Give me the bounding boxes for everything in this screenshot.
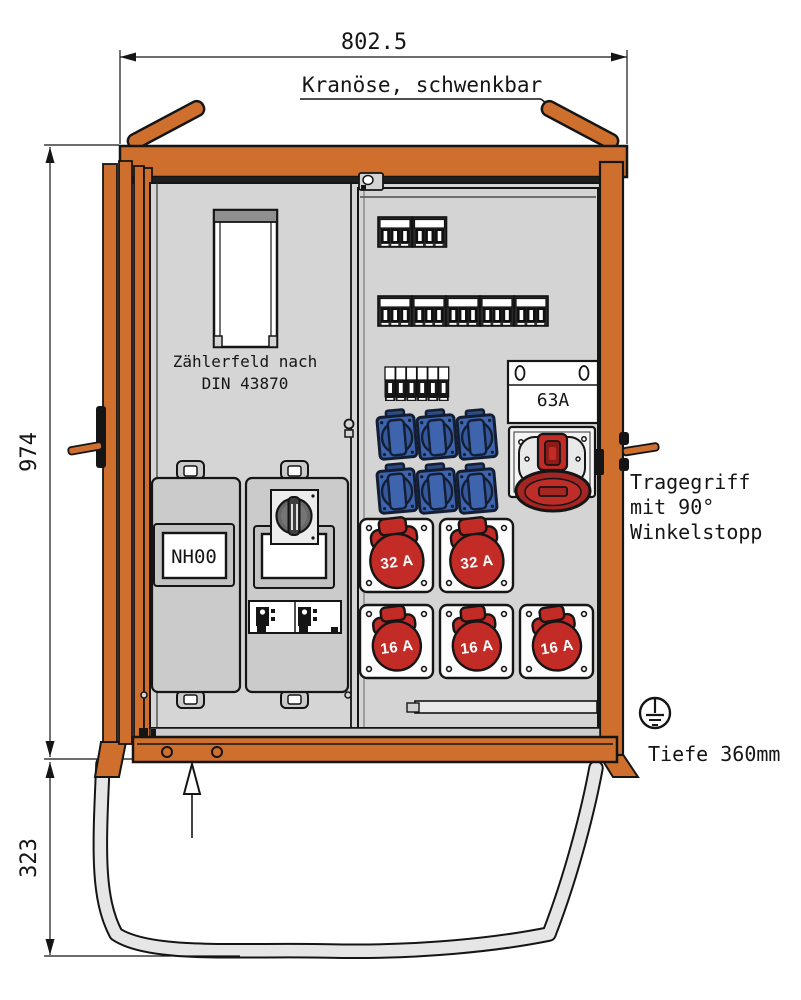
technical-drawing-page: 802.5 974 323 Kranöse, schwenkbar [0, 0, 801, 1000]
rotary-main-switch [271, 490, 318, 544]
carrying-handle-icon [622, 443, 659, 456]
breaker-row-2 [378, 296, 548, 326]
earth-symbol-icon [640, 698, 670, 728]
arrowhead-up-icon [46, 762, 55, 778]
left-door-open [103, 161, 152, 744]
cee16-sockets: 16 A 16 A 16 A [360, 603, 593, 678]
crane-eye-leader [300, 99, 558, 113]
bottom-sill [150, 728, 600, 737]
main-breaker-rating: 63A [537, 390, 570, 411]
arrowhead-right-icon [611, 53, 627, 62]
cee63-unit: 63A [508, 361, 604, 511]
meter-label-line2: DIN 43870 [202, 374, 289, 393]
dim-left-label: 974 [17, 432, 42, 472]
handle-label-line1: Tragegriff [630, 470, 750, 494]
handle-label-line2: mit 90° [630, 495, 714, 519]
arrowhead-left-icon [120, 53, 136, 62]
dim-top-label: 802.5 [341, 30, 407, 55]
dimension-stand-height [44, 762, 240, 956]
stand-frame [100, 764, 596, 951]
crane-eye-label: Kranöse, schwenkbar [302, 73, 542, 97]
arrowhead-down-icon [46, 939, 55, 955]
distribution-compartment: 63A 32 A [358, 173, 604, 728]
left-foot [95, 742, 126, 777]
meter-window [214, 210, 277, 347]
handle-label-line3: Winkelstopp [630, 520, 762, 544]
arrowhead-down-icon [46, 741, 55, 757]
left-door-handle-mount [96, 406, 106, 468]
dim-stand-label: 323 [17, 838, 42, 878]
distribution-board-drawing: 802.5 974 323 Kranöse, schwenkbar [0, 0, 801, 1000]
breaker-row-1 [378, 217, 447, 247]
depth-label: Tiefe 360mm [648, 742, 780, 766]
dimension-top-width [120, 50, 627, 144]
nh-fuse-label: NH00 [171, 546, 217, 568]
meter-label-line1: Zählerfeld nach [173, 352, 318, 371]
arrowhead-up-icon [46, 147, 55, 163]
breaker-row-3 [385, 367, 449, 401]
mounting-arrow-icon [184, 764, 200, 838]
terminal-blocks [249, 601, 341, 633]
cabinet: Zählerfeld nach DIN 43870 NH00 [68, 99, 659, 777]
bottom-rail [133, 737, 617, 762]
